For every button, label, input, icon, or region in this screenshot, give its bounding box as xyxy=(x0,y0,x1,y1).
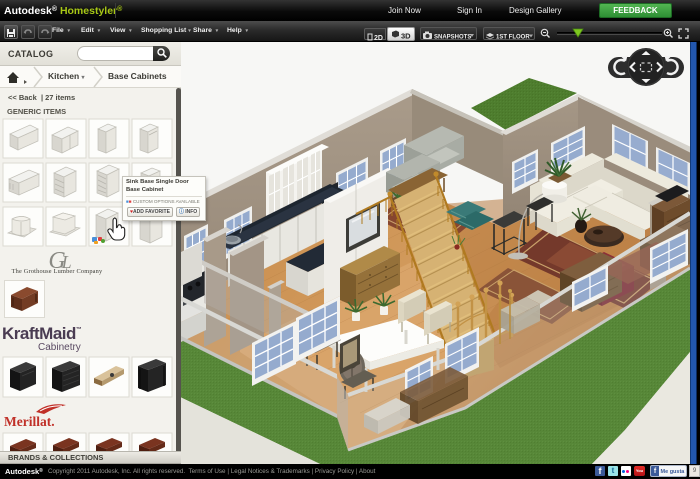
svg-text:3D: 3D xyxy=(401,32,411,41)
svg-text:SNAPSHOTS: SNAPSHOTS xyxy=(434,35,471,41)
svg-text:2D: 2D xyxy=(374,35,383,42)
svg-text:1ST FLOOR: 1ST FLOOR xyxy=(496,35,530,41)
